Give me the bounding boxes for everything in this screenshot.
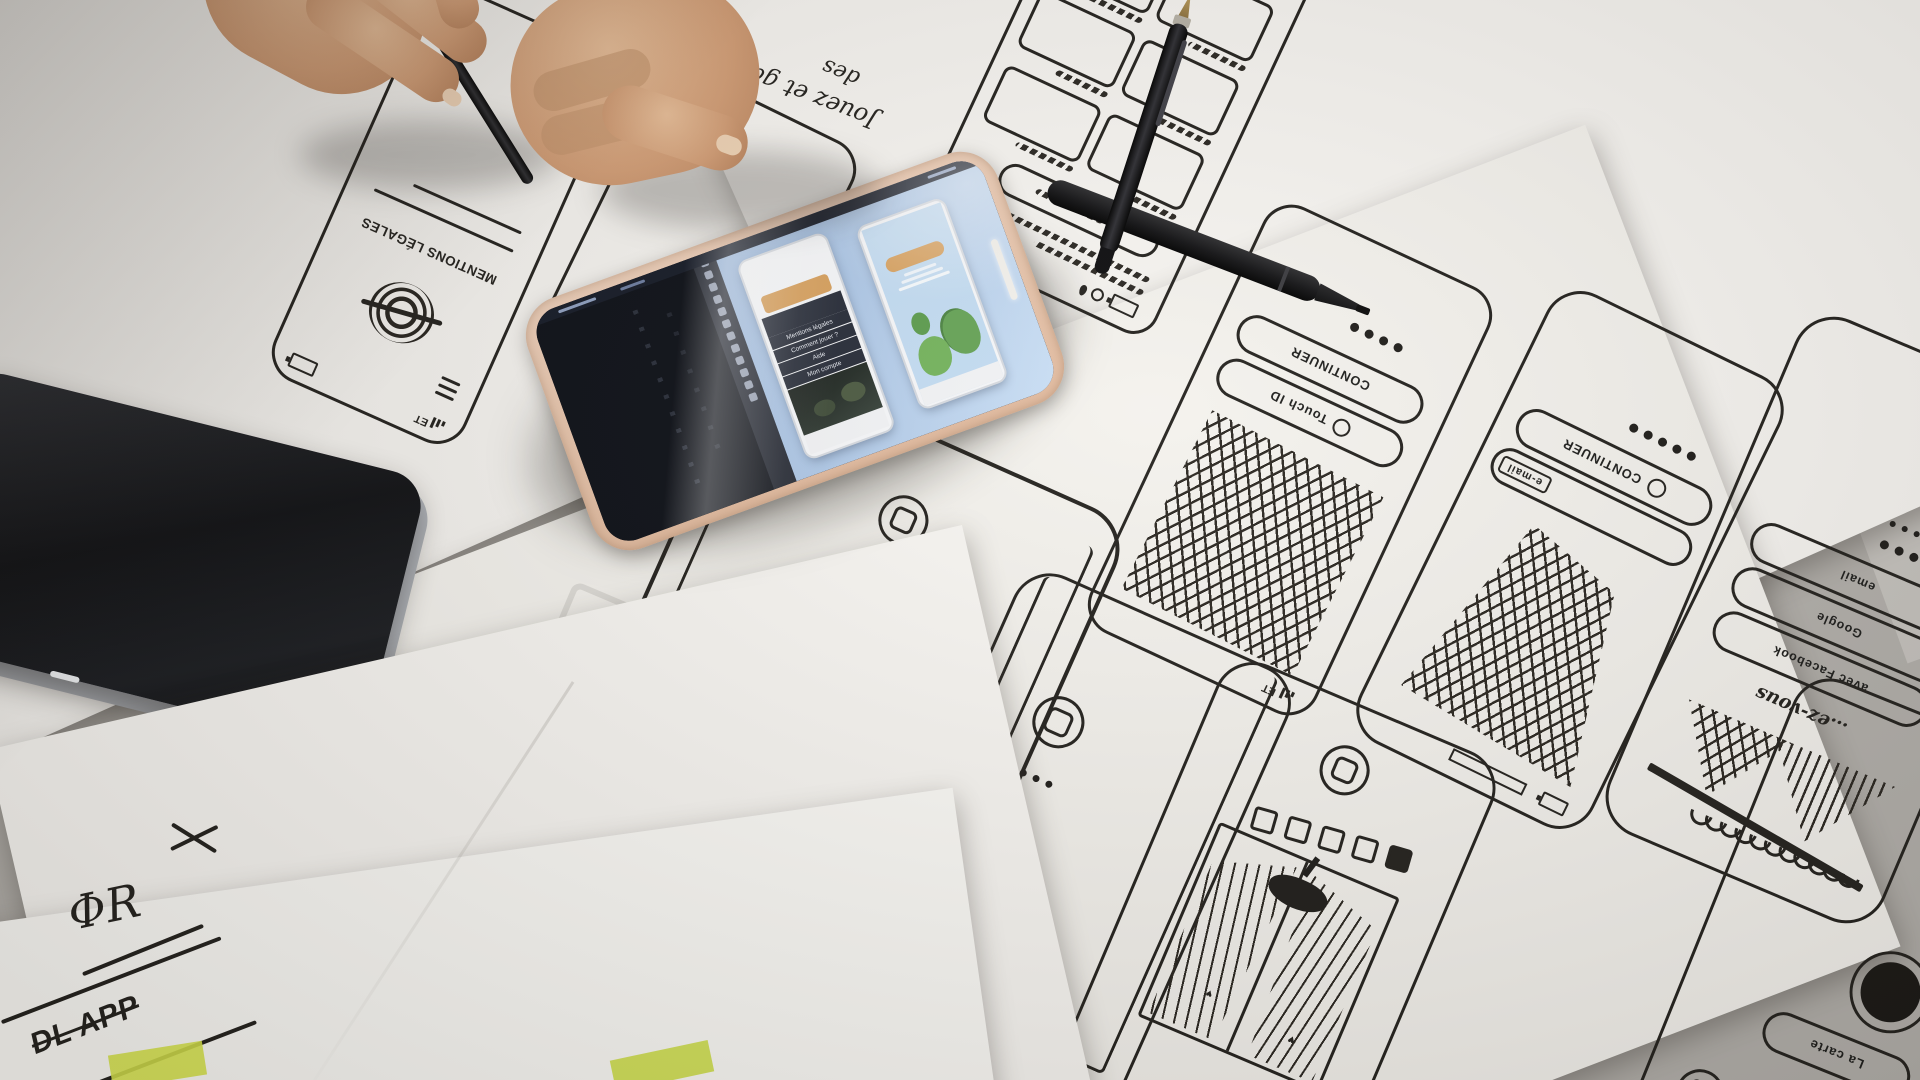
email-pill-label: email	[1838, 567, 1878, 594]
carte-label: La carte	[1807, 1037, 1866, 1073]
email-label: e-mail	[1505, 461, 1544, 488]
app-badge-icon	[1644, 475, 1669, 500]
google-pill-label: Google	[1814, 609, 1865, 641]
handwritten-cross-mark	[165, 815, 222, 864]
photo-scene: ET MENTIONS LÉGALES Jouez et gagnez des	[0, 0, 1920, 1080]
fingerprint-icon	[1329, 416, 1353, 440]
right-hand: Sign	[480, 0, 820, 250]
